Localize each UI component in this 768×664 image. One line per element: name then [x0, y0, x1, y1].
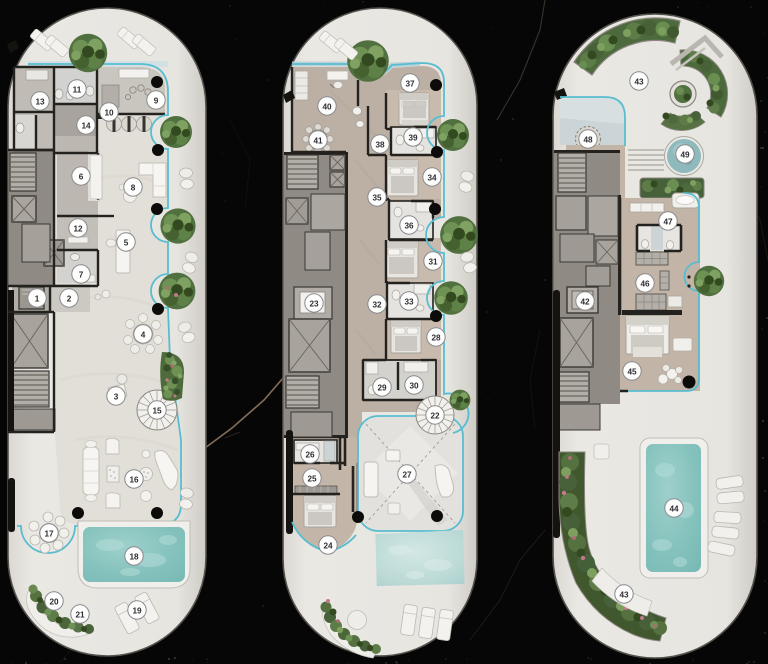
svg-text:5: 5: [124, 239, 129, 248]
svg-text:37: 37: [405, 80, 415, 89]
svg-text:35: 35: [372, 194, 382, 203]
svg-text:2: 2: [67, 295, 72, 304]
svg-text:7: 7: [79, 271, 84, 280]
svg-text:31: 31: [428, 258, 438, 267]
svg-text:23: 23: [309, 300, 319, 309]
svg-text:46: 46: [640, 280, 650, 289]
svg-text:13: 13: [35, 98, 45, 107]
svg-text:18: 18: [129, 553, 139, 562]
svg-text:12: 12: [73, 225, 83, 234]
svg-text:24: 24: [323, 542, 333, 551]
svg-text:40: 40: [322, 103, 332, 112]
svg-text:38: 38: [375, 141, 385, 150]
svg-text:3: 3: [114, 393, 119, 402]
svg-text:16: 16: [129, 476, 139, 485]
svg-text:9: 9: [154, 97, 159, 106]
svg-text:34: 34: [427, 174, 437, 183]
svg-text:22: 22: [430, 412, 440, 421]
svg-text:25: 25: [307, 475, 317, 484]
svg-text:4: 4: [141, 331, 146, 340]
svg-text:26: 26: [305, 451, 315, 460]
svg-text:43: 43: [634, 78, 644, 87]
svg-text:6: 6: [79, 173, 84, 182]
svg-text:28: 28: [431, 334, 441, 343]
svg-text:39: 39: [408, 134, 418, 143]
svg-text:30: 30: [409, 382, 419, 391]
svg-text:11: 11: [73, 86, 82, 95]
svg-text:15: 15: [152, 407, 162, 416]
svg-text:43: 43: [619, 591, 629, 600]
svg-text:1: 1: [35, 295, 40, 304]
svg-text:42: 42: [580, 298, 590, 307]
svg-text:45: 45: [627, 368, 637, 377]
svg-text:48: 48: [583, 136, 593, 145]
svg-text:19: 19: [132, 607, 142, 616]
svg-text:29: 29: [377, 384, 387, 393]
svg-text:27: 27: [402, 471, 412, 480]
svg-text:14: 14: [81, 122, 91, 131]
svg-text:41: 41: [313, 137, 323, 146]
svg-text:8: 8: [131, 184, 136, 193]
svg-text:49: 49: [680, 151, 690, 160]
svg-text:36: 36: [404, 222, 414, 231]
svg-text:10: 10: [104, 109, 114, 118]
svg-text:21: 21: [75, 611, 85, 620]
svg-text:17: 17: [44, 530, 54, 539]
svg-text:32: 32: [372, 301, 382, 310]
svg-text:47: 47: [663, 218, 673, 227]
svg-text:44: 44: [669, 505, 679, 514]
svg-text:33: 33: [404, 298, 414, 307]
svg-text:20: 20: [49, 598, 59, 607]
